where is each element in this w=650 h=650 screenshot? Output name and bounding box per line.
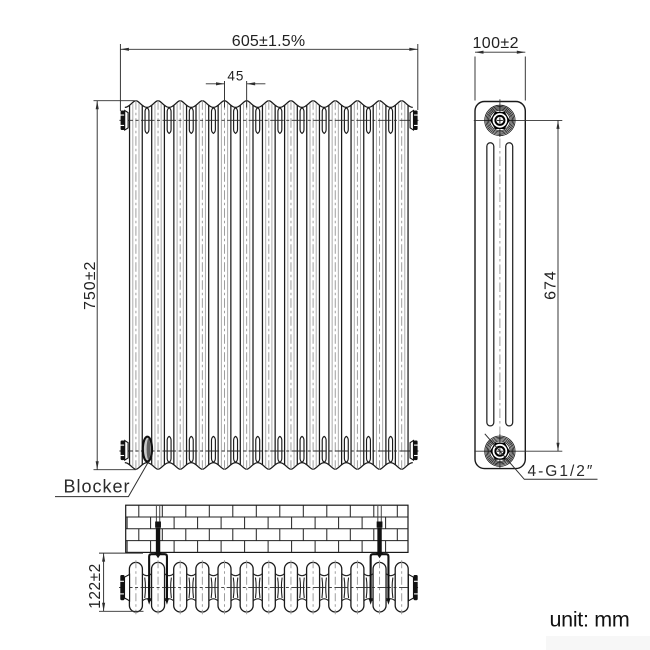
svg-text:Blocker: Blocker bbox=[63, 476, 130, 496]
svg-text:100±2: 100±2 bbox=[473, 35, 519, 52]
svg-text:122±2: 122±2 bbox=[87, 563, 104, 609]
svg-text:605±1.5%: 605±1.5% bbox=[232, 33, 306, 50]
svg-text:674: 674 bbox=[542, 270, 559, 300]
svg-text:unit: mm: unit: mm bbox=[550, 608, 630, 632]
svg-text:4-G1/2″: 4-G1/2″ bbox=[528, 463, 595, 480]
svg-text:750±2: 750±2 bbox=[82, 261, 99, 310]
svg-text:45: 45 bbox=[227, 69, 244, 84]
